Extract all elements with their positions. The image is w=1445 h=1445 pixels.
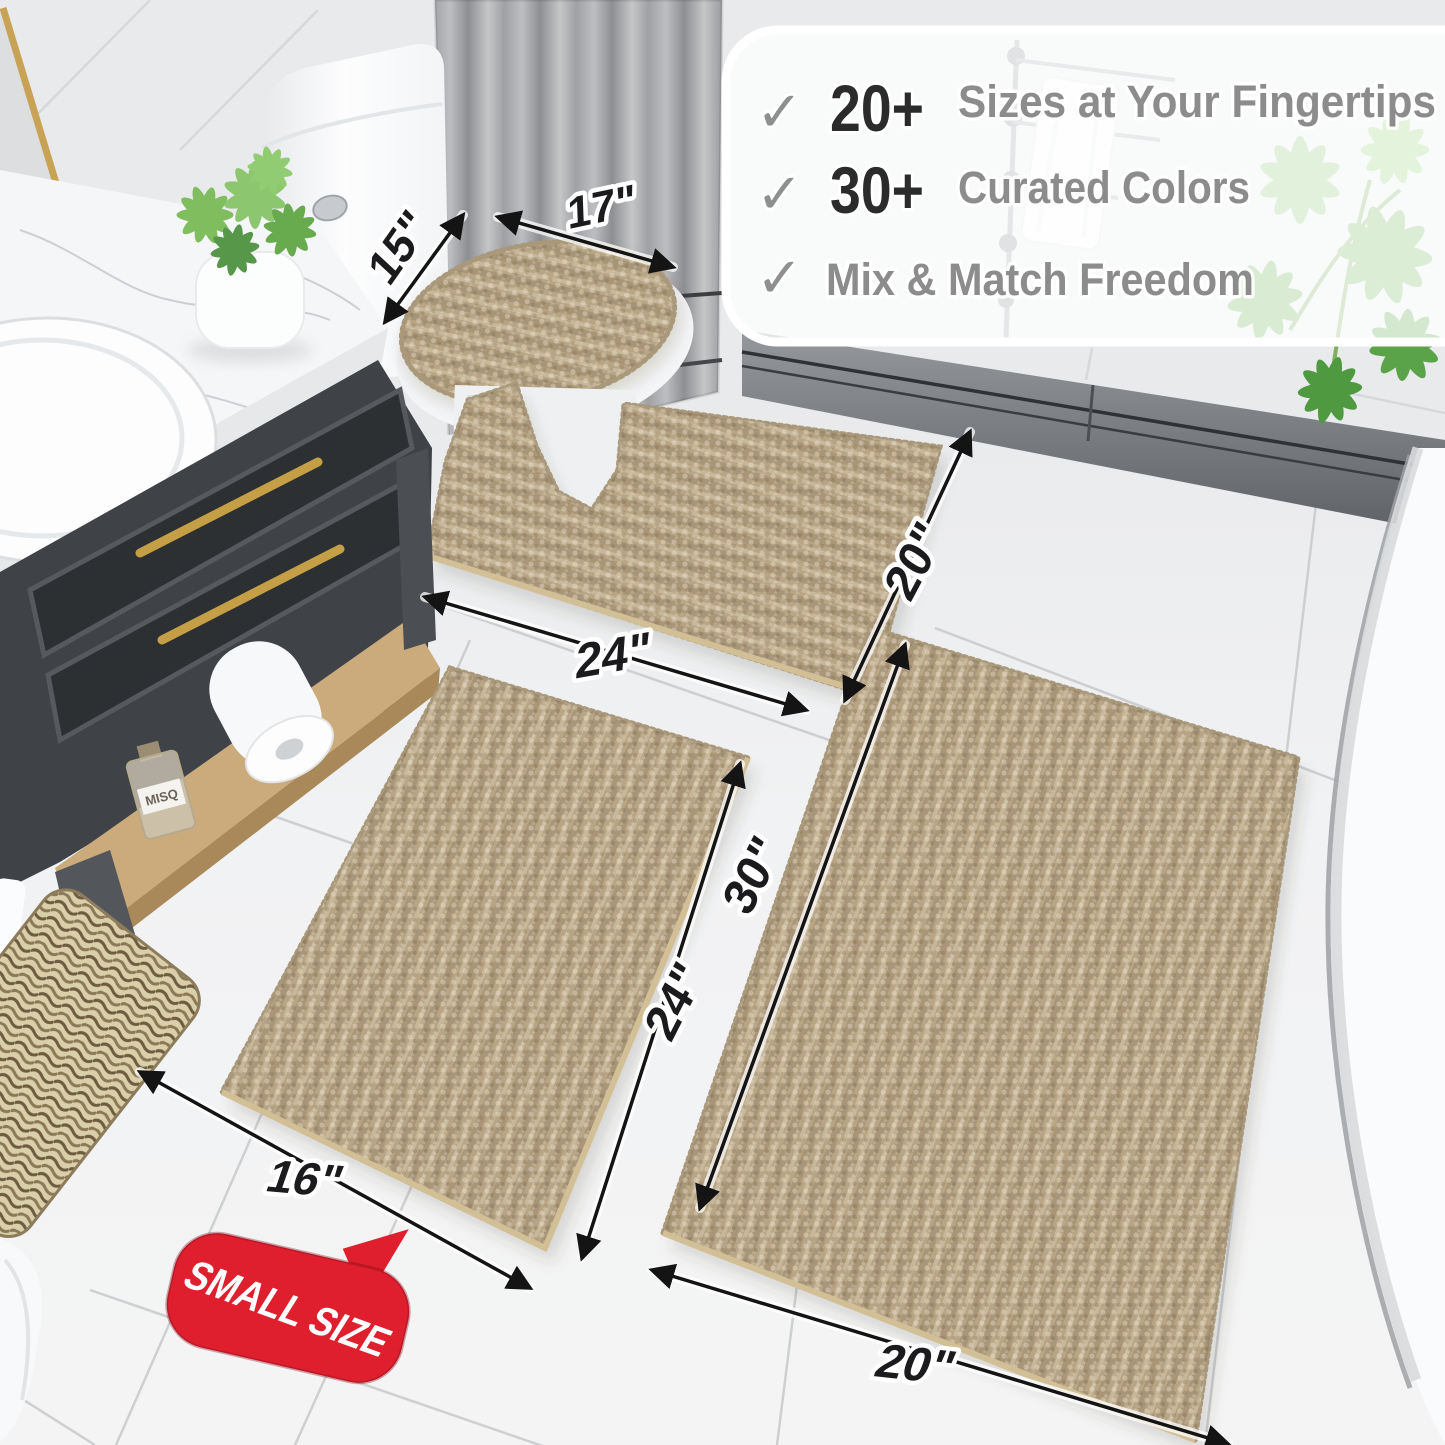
- feature-count: 20+: [830, 71, 924, 145]
- scene: MISQ: [0, 0, 1445, 1445]
- check-icon: ✓: [756, 162, 803, 225]
- check-icon: ✓: [756, 80, 803, 143]
- bathroom-product-photo: MISQ: [0, 0, 1445, 1445]
- check-icon: ✓: [756, 246, 803, 309]
- feature-callout-panel: ✓ ✓ ✓ 20+ 30+ Sizes at Your Fingertips C…: [726, 30, 1445, 342]
- feature-count: 30+: [830, 153, 924, 227]
- feature-label: Sizes at Your Fingertips: [958, 76, 1436, 127]
- feature-label: Curated Colors: [958, 162, 1250, 213]
- feature-label: Mix & Match Freedom: [826, 254, 1254, 305]
- plant-pot: [196, 252, 304, 348]
